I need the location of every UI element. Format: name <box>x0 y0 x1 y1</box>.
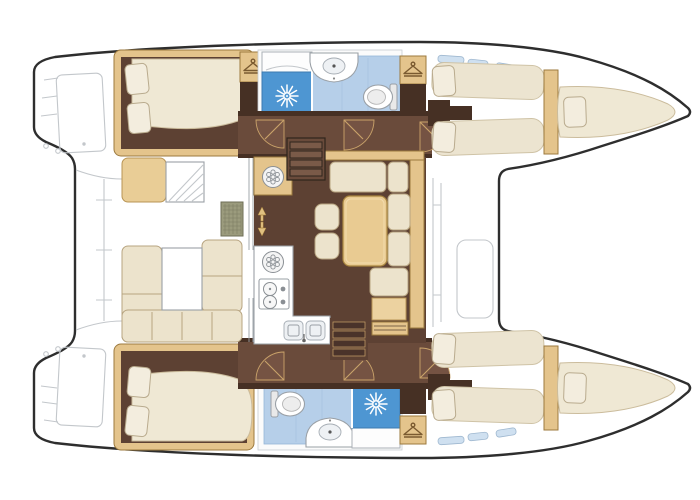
catamaran-deck-plan <box>0 0 700 500</box>
cockpit-table <box>162 248 202 310</box>
port-companionway-steps <box>287 138 325 180</box>
toilet-icon <box>364 84 398 110</box>
pillow <box>124 405 149 437</box>
settee-cushion <box>388 194 410 230</box>
toilet-icon <box>271 391 305 417</box>
settee-chaise <box>372 298 406 320</box>
bulkhead <box>544 70 558 154</box>
pillow <box>124 63 149 95</box>
deck-plan-svg <box>0 0 700 500</box>
ottoman-stool <box>315 204 339 230</box>
salon <box>249 138 426 360</box>
salon-side-cabinet <box>410 160 424 328</box>
settee-cushion <box>370 268 408 296</box>
vent-fan-icon <box>263 167 284 188</box>
pillow <box>432 333 456 364</box>
pillow <box>563 373 586 404</box>
settee-cushion <box>388 232 410 266</box>
starboard-aft-cabin <box>114 344 254 450</box>
bulkhead <box>544 346 558 430</box>
pillow <box>127 102 152 134</box>
pillow <box>432 65 456 96</box>
port-aft-cabin <box>114 50 254 156</box>
cockpit-hatch-grid <box>221 202 243 236</box>
settee-cushion <box>330 162 386 192</box>
drawer-unit <box>372 322 408 335</box>
pillow <box>432 121 456 152</box>
helm-seat <box>122 158 166 202</box>
salon-table <box>343 196 387 266</box>
pillow <box>563 97 586 128</box>
ottoman-stool <box>315 233 339 259</box>
vent-fan-icon <box>263 252 284 273</box>
starboard-companionway-steps <box>330 318 368 360</box>
pillow <box>432 389 456 420</box>
stove-icon <box>259 279 289 309</box>
hull-window <box>438 436 464 445</box>
settee-cushion <box>388 162 408 192</box>
pillow <box>127 366 152 398</box>
shower-tray <box>352 428 400 448</box>
